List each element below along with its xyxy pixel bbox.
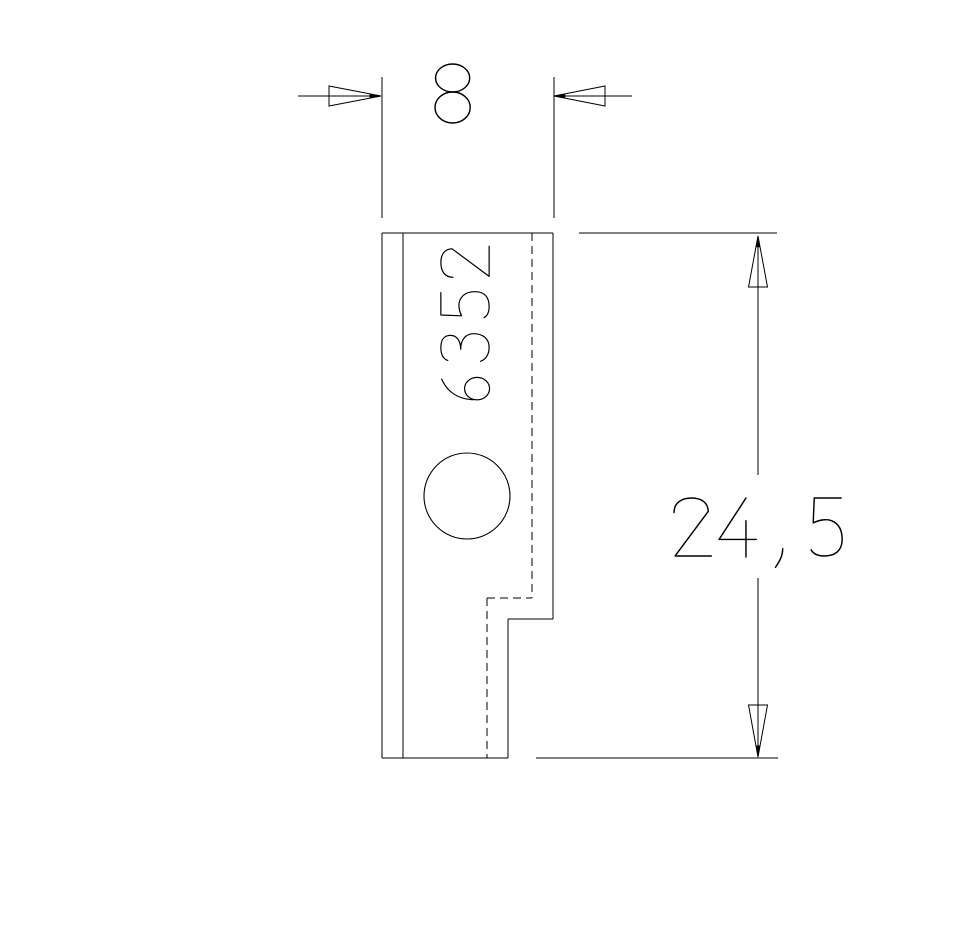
part-number-glyph-3 xyxy=(441,334,489,362)
part-number xyxy=(441,246,490,400)
part-hole xyxy=(424,453,510,539)
part-number-glyph-stroke xyxy=(465,377,490,399)
height-dim-text-glyph-stroke xyxy=(811,498,842,556)
part-number-glyph-6 xyxy=(442,377,490,399)
height-dim-text-glyph-stroke xyxy=(674,498,711,556)
part-number-glyph-stroke xyxy=(441,292,489,318)
width-dim-text-glyph-stroke xyxy=(436,64,470,92)
technical-drawing-svg xyxy=(0,0,968,949)
height-dim-text-glyph-2 xyxy=(674,498,711,556)
height-dim-text-glyph-4 xyxy=(719,498,756,557)
width-dim-text-glyph-stroke xyxy=(435,92,470,123)
height-dim-text-glyph-5 xyxy=(811,498,842,556)
drawing-canvas xyxy=(0,0,968,949)
height-dim-text xyxy=(674,498,842,567)
part-outline xyxy=(382,233,553,758)
part-number-glyph-stroke xyxy=(441,246,489,277)
width-dim-text-glyph-8 xyxy=(435,64,470,123)
height-dim-text-glyph-stroke xyxy=(719,498,756,539)
hole-circle xyxy=(424,453,510,539)
part-number-text xyxy=(441,246,490,400)
width-dim-text xyxy=(435,64,470,123)
dimension-width xyxy=(298,64,632,218)
part-number-glyph-5 xyxy=(441,292,489,318)
part-number-glyph-2 xyxy=(441,246,489,277)
dimension-height xyxy=(536,233,842,758)
height-dim-text-glyph-stroke xyxy=(775,549,782,568)
height-dim-text-glyph-, xyxy=(775,549,782,568)
part-number-glyph-stroke xyxy=(441,334,489,362)
